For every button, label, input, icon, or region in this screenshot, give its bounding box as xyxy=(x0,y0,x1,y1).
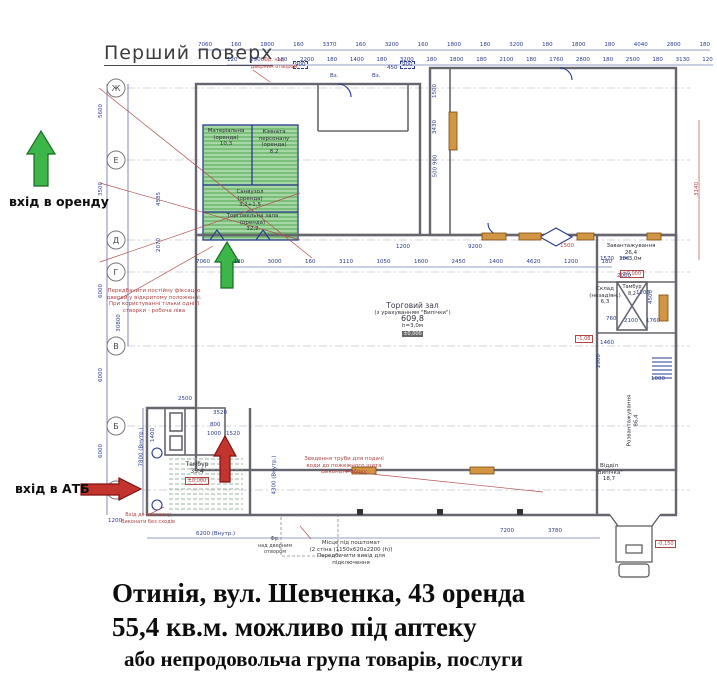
dim-label: 4585 xyxy=(156,192,162,206)
dim-value: 180 xyxy=(426,57,437,63)
listing-caption: Отинія, вул. Шевченка, 43 оренда 55,4 кв… xyxy=(112,576,692,674)
dim-label: 3430 xyxy=(432,120,438,134)
dim-label: 2100 xyxy=(624,318,638,324)
dim-label: 3780 xyxy=(548,528,562,534)
elevation-mark: -0,150 xyxy=(655,540,676,548)
dim-label: 7200 xyxy=(500,528,514,534)
room-area: 10,3 xyxy=(220,141,232,148)
dim-label: 1000 xyxy=(651,376,665,382)
room-label-wc: Санвузол (оренда) 3,2+1,5 xyxy=(226,189,274,209)
room-area: 6,3 xyxy=(601,299,610,306)
dim-value: 160 xyxy=(355,42,366,48)
note-fr-bottom: Фр. над дверним отвором xyxy=(253,536,297,556)
dim-label: 1460 xyxy=(600,340,614,346)
dim-value: 4040 xyxy=(634,42,648,48)
room-label-staff: Кімната персоналу (оренда) 8,2 xyxy=(250,129,298,155)
dim-label: 5600 xyxy=(98,104,104,118)
caption-area: 55,4 кв.м. можливо під аптеку xyxy=(112,610,692,644)
dim-value: 180 xyxy=(327,57,338,63)
dim-label: 9200 xyxy=(468,244,482,250)
truck-icon xyxy=(610,515,660,577)
dim-value: 3200 xyxy=(509,42,523,48)
elevation-mark: ±0,000 xyxy=(185,477,209,485)
atb-entrance-label: вхід в АТБ xyxy=(15,481,90,496)
dim-label: 1000 xyxy=(207,431,221,437)
dim-label: 4300 (Внутр.) xyxy=(272,455,278,494)
axis-letter: В xyxy=(113,342,119,351)
note-line: дверним отвором xyxy=(243,64,305,71)
dim-label: 7800 (Внутр.) xyxy=(139,427,145,466)
dim-value: 2450 xyxy=(452,259,466,265)
room-label-hoist: Тамбур 8,2 xyxy=(620,284,644,297)
room-height: h=3,0м xyxy=(621,256,642,263)
dim-label: 1500 xyxy=(560,243,574,249)
dim-value: 1760 xyxy=(549,57,563,63)
dim-value: 3110 xyxy=(339,259,353,265)
room-label-loading: Завантажування 26,4 h=3,0м xyxy=(598,243,664,263)
dimension-chain-mid: 7060180300016031101050160024501400462012… xyxy=(196,259,612,265)
dim-value: 1050 xyxy=(377,259,391,265)
room-label-unloading: Розвантажування 86,4 xyxy=(627,386,640,456)
room-area: 86,4 xyxy=(633,414,640,426)
room-area: 18,7 xyxy=(603,476,615,483)
dim-label: 3140 xyxy=(694,182,700,196)
axis-letter: Б xyxy=(113,422,119,431)
dim-value: 1400 xyxy=(489,259,503,265)
dim-value: 180 xyxy=(476,57,487,63)
dim-value: 180 xyxy=(652,57,663,63)
rent-entrance-label: вхід в оренду xyxy=(9,194,109,209)
dim-value: 180 xyxy=(542,42,553,48)
room-area: 8,2 xyxy=(628,291,636,298)
room-label-main-hall: Торговий зал (з урахуванням "Випічки") 6… xyxy=(365,303,460,337)
room-label-bakery: Відділ "Випічка" 18,7 xyxy=(590,463,628,483)
dim-value: 160 xyxy=(305,259,316,265)
dim-value: 3000 xyxy=(268,259,282,265)
dim-value: 1800 xyxy=(447,42,461,48)
note-line: створки - робоча ліва xyxy=(96,308,212,315)
dimension-chain-top-1: 7060160180016033701603200160180018032001… xyxy=(198,42,710,48)
dim-value: 2800 xyxy=(576,57,590,63)
rent-zone-arrow-icon xyxy=(215,242,239,288)
dim-label: 6200 (Внутр.) xyxy=(196,531,235,537)
dim-label: 500 900 xyxy=(432,155,438,178)
dim-value: 7060 xyxy=(196,259,210,265)
room-label-tambour: Тамбур 35,4 ±0,000 xyxy=(176,462,218,485)
note-postomat: Місце під поштомат (2 стіна (1150х620х22… xyxy=(295,540,407,566)
room-label-material: Матеріальна (оренда) 10,3 xyxy=(203,128,249,148)
dim-value: 180 xyxy=(603,57,614,63)
dim-value: 1800 xyxy=(572,42,586,48)
window-mark: Вз. xyxy=(330,73,338,79)
dim-value: 2800 xyxy=(667,42,681,48)
dim-value: 180 xyxy=(377,57,388,63)
dim-value: 120 xyxy=(702,57,713,63)
elevation-mark: ±0,000 xyxy=(402,331,424,337)
dim-value: 3200 xyxy=(385,42,399,48)
axis-letter: Ж xyxy=(112,84,121,93)
dim-value: 160 xyxy=(418,42,429,48)
dim-label: 1520 xyxy=(226,431,240,437)
note-fr-top: Фр. над дверним отвором xyxy=(243,57,305,70)
dim-label: 450 xyxy=(387,65,398,71)
dim-value: 1600 xyxy=(414,259,428,265)
dim-label: 900 xyxy=(400,61,415,69)
room-area: 3,2+1,5 xyxy=(239,202,261,209)
note-line: підключення xyxy=(295,560,407,567)
room-area: 32,2 xyxy=(246,226,258,233)
dim-label: 6000 xyxy=(98,368,104,382)
elevation-mark: -1,08 xyxy=(575,335,593,343)
note-fire-pipe: Зведення труби для подачі води до пожежн… xyxy=(294,456,394,476)
caption-usage: або непродовольча група товарів, послуги xyxy=(112,644,692,674)
dim-value: 4620 xyxy=(527,259,541,265)
dim-value: 3370 xyxy=(323,42,337,48)
dim-value: 1400 xyxy=(350,57,364,63)
room-height: h=3,0м xyxy=(402,323,423,330)
rent-entrance-arrow-icon xyxy=(27,131,55,186)
note-line: Виконати збоку xyxy=(294,469,394,476)
note-door-fix: Передбачити постійну фіксацію дверей у в… xyxy=(96,288,212,314)
axis-letter: Е xyxy=(113,156,118,165)
room-label-storage: Склад (незадіян.) 6,3 xyxy=(590,286,620,306)
dim-label: 3500 xyxy=(98,182,104,196)
dim-value: 1800 xyxy=(260,42,274,48)
dim-label: 760 xyxy=(606,316,617,322)
dim-value: 2100 xyxy=(499,57,513,63)
note-entrance: Вхід до магазину Виконати без сходів xyxy=(111,512,185,525)
dim-label: 1760 xyxy=(646,318,660,324)
note-line: Виконати без сходів xyxy=(111,519,185,526)
axis-letter: Д xyxy=(113,236,119,245)
dim-value: 180 xyxy=(480,42,491,48)
dim-label: 3520 xyxy=(213,410,227,416)
dim-label: 2500 xyxy=(178,396,192,402)
dim-label: 1500 xyxy=(432,84,438,98)
dim-label: 2900 xyxy=(596,354,602,368)
caption-address: Отинія, вул. Шевченка, 43 оренда xyxy=(112,576,692,610)
floor-plan-page: Ж Е Д Г В Б А Перший поверх вхід в оренд… xyxy=(0,0,717,699)
room-area: 35,4 xyxy=(190,469,203,476)
dim-value: 3130 xyxy=(676,57,690,63)
elevation-mark: ±0,000 xyxy=(620,270,644,278)
dim-value: 160 xyxy=(231,42,242,48)
room-label-trade: Торговельна зала (оренда) 32,2 xyxy=(210,213,295,233)
dim-label: 6000 xyxy=(98,444,104,458)
dim-value: 180 xyxy=(700,42,711,48)
dim-value: 7060 xyxy=(198,42,212,48)
dim-value: 2500 xyxy=(626,57,640,63)
room-area: 8,2 xyxy=(270,149,279,156)
window-mark: Вз. xyxy=(372,73,380,79)
dim-value: 180 xyxy=(526,57,537,63)
dim-label: 2070 xyxy=(156,238,162,252)
dim-value: 1200 xyxy=(564,259,578,265)
axis-letter: Г xyxy=(114,268,119,277)
note-line: отвором xyxy=(253,549,297,556)
dim-label: 30800 xyxy=(116,314,122,332)
dim-value: 180 xyxy=(234,259,245,265)
dim-value: 160 xyxy=(293,42,304,48)
dim-label: 1400 xyxy=(150,428,156,442)
dim-value: 1800 xyxy=(450,57,464,63)
dim-label: 800 xyxy=(210,422,221,428)
dim-label: 1200 xyxy=(396,244,410,250)
dim-value: 180 xyxy=(604,42,615,48)
dim-value: 120 xyxy=(227,57,238,63)
